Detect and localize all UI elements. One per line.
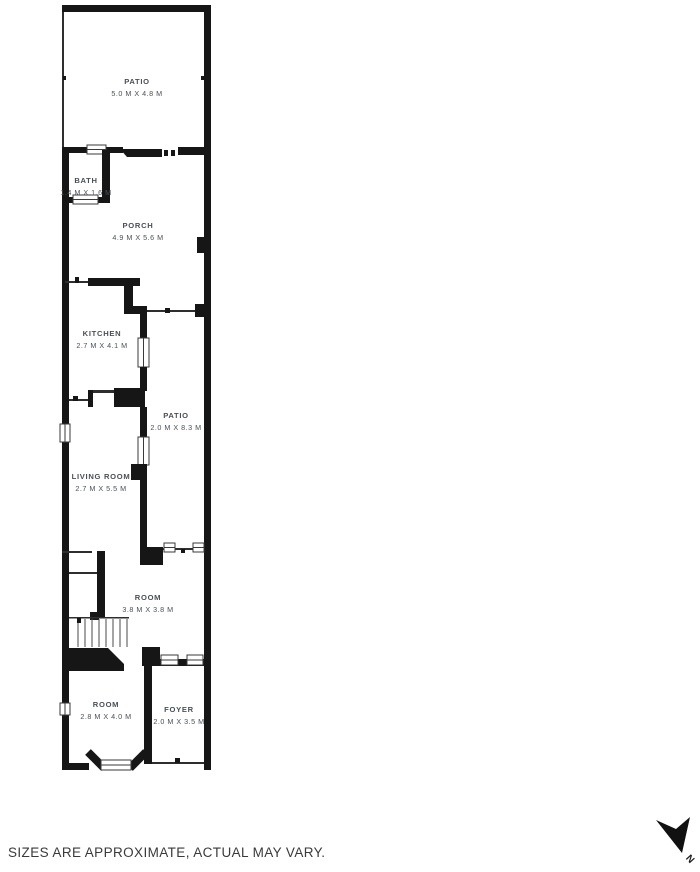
hall-corner-block [142,647,160,666]
stair-bottom-wall [62,648,124,671]
living-patio-window [138,437,149,465]
living-patio-divider-lower [140,465,147,548]
door-jamb-tick [171,150,175,156]
floor-plan-drawing: PATIO 5.0 M X 4.8 M BATH 1.4 M X 1.6 M P… [0,0,700,872]
room-dims: 2.7 M X 4.1 M [76,341,127,350]
room-dims: 1.4 M X 1.6 M [60,188,111,197]
room-label: ROOM [93,700,119,709]
kitchen-patio-divider-lower [140,367,147,391]
gate-tick [181,549,185,553]
kitchen-bottom-block [114,388,145,407]
north-arrow-icon: N [656,817,696,866]
room-dims: 3.8 M X 3.8 M [122,605,173,614]
stair-newel-post [90,612,99,620]
floor-plan-page: PATIO 5.0 M X 4.8 M BATH 1.4 M X 1.6 M P… [0,0,700,872]
living-bottom-line [62,551,92,553]
fence-tick-right [201,76,204,80]
room-label: FOYER [164,705,194,714]
north-arrow-shape [656,817,690,853]
left-wall [62,148,69,770]
foyer-top-window [187,655,203,665]
kitchen-patio-window [138,338,149,367]
bay-wall-right [130,752,146,768]
door-jamb-tick [164,150,168,156]
room-dims: 2.8 M X 4.0 M [80,712,131,721]
room-dims: 5.0 M X 4.8 M [111,89,162,98]
right-wall [204,5,211,770]
stair-side-wall [97,551,105,618]
patio-bottom-window [193,543,204,552]
kitchen-patio-divider-upper [140,308,147,339]
porch-top-wall-right [178,147,204,155]
room-label: PORCH [123,221,154,230]
stair-hall [62,551,129,671]
door-jamb-tick [75,277,79,283]
patio-bottom-window [164,543,175,552]
porch-chimney [197,237,204,253]
kitchen-bottom-stub [88,390,93,407]
living-door-threshold [69,399,88,401]
room-label: LIVING ROOM [72,472,131,481]
fence-tick-left [63,76,66,80]
room-foyer-divider [144,666,152,764]
room-label: ROOM [135,593,161,602]
left-wall-window-room [60,703,70,715]
north-label: N [683,853,696,866]
door-jamb-tick [180,659,184,664]
gate-tick [165,308,170,313]
room-dims: 2.0 M X 3.5 M [153,717,204,726]
disclaimer-text: SIZES ARE APPROXIMATE, ACTUAL MAY VARY. [8,845,325,860]
kitchen-top-wall [88,278,140,286]
top-wall [62,5,211,12]
room-dims: 2.0 M X 8.3 M [150,423,201,432]
stair-tick [77,618,81,623]
left-wall-window-living [60,424,70,442]
bottom-wall-left [69,763,89,770]
room-dims: 2.7 M X 5.5 M [75,484,126,493]
stair-void-line [69,572,97,574]
living-patio-divider-upper [140,407,147,438]
foyer-top-window [161,655,178,665]
room-label: PATIO [163,411,189,420]
room-dims: 4.9 M X 5.6 M [112,233,163,242]
staircase [78,619,127,647]
door-jamb-tick [175,758,180,763]
patio-top-block [195,304,204,317]
porch-top-wall-left [120,149,162,157]
bay-window [101,760,131,770]
patio-corner-block [140,547,163,565]
room-label: KITCHEN [83,329,122,338]
door-jamb-tick [73,396,78,401]
room-label: PATIO [124,77,150,86]
room-label: BATH [74,176,97,185]
